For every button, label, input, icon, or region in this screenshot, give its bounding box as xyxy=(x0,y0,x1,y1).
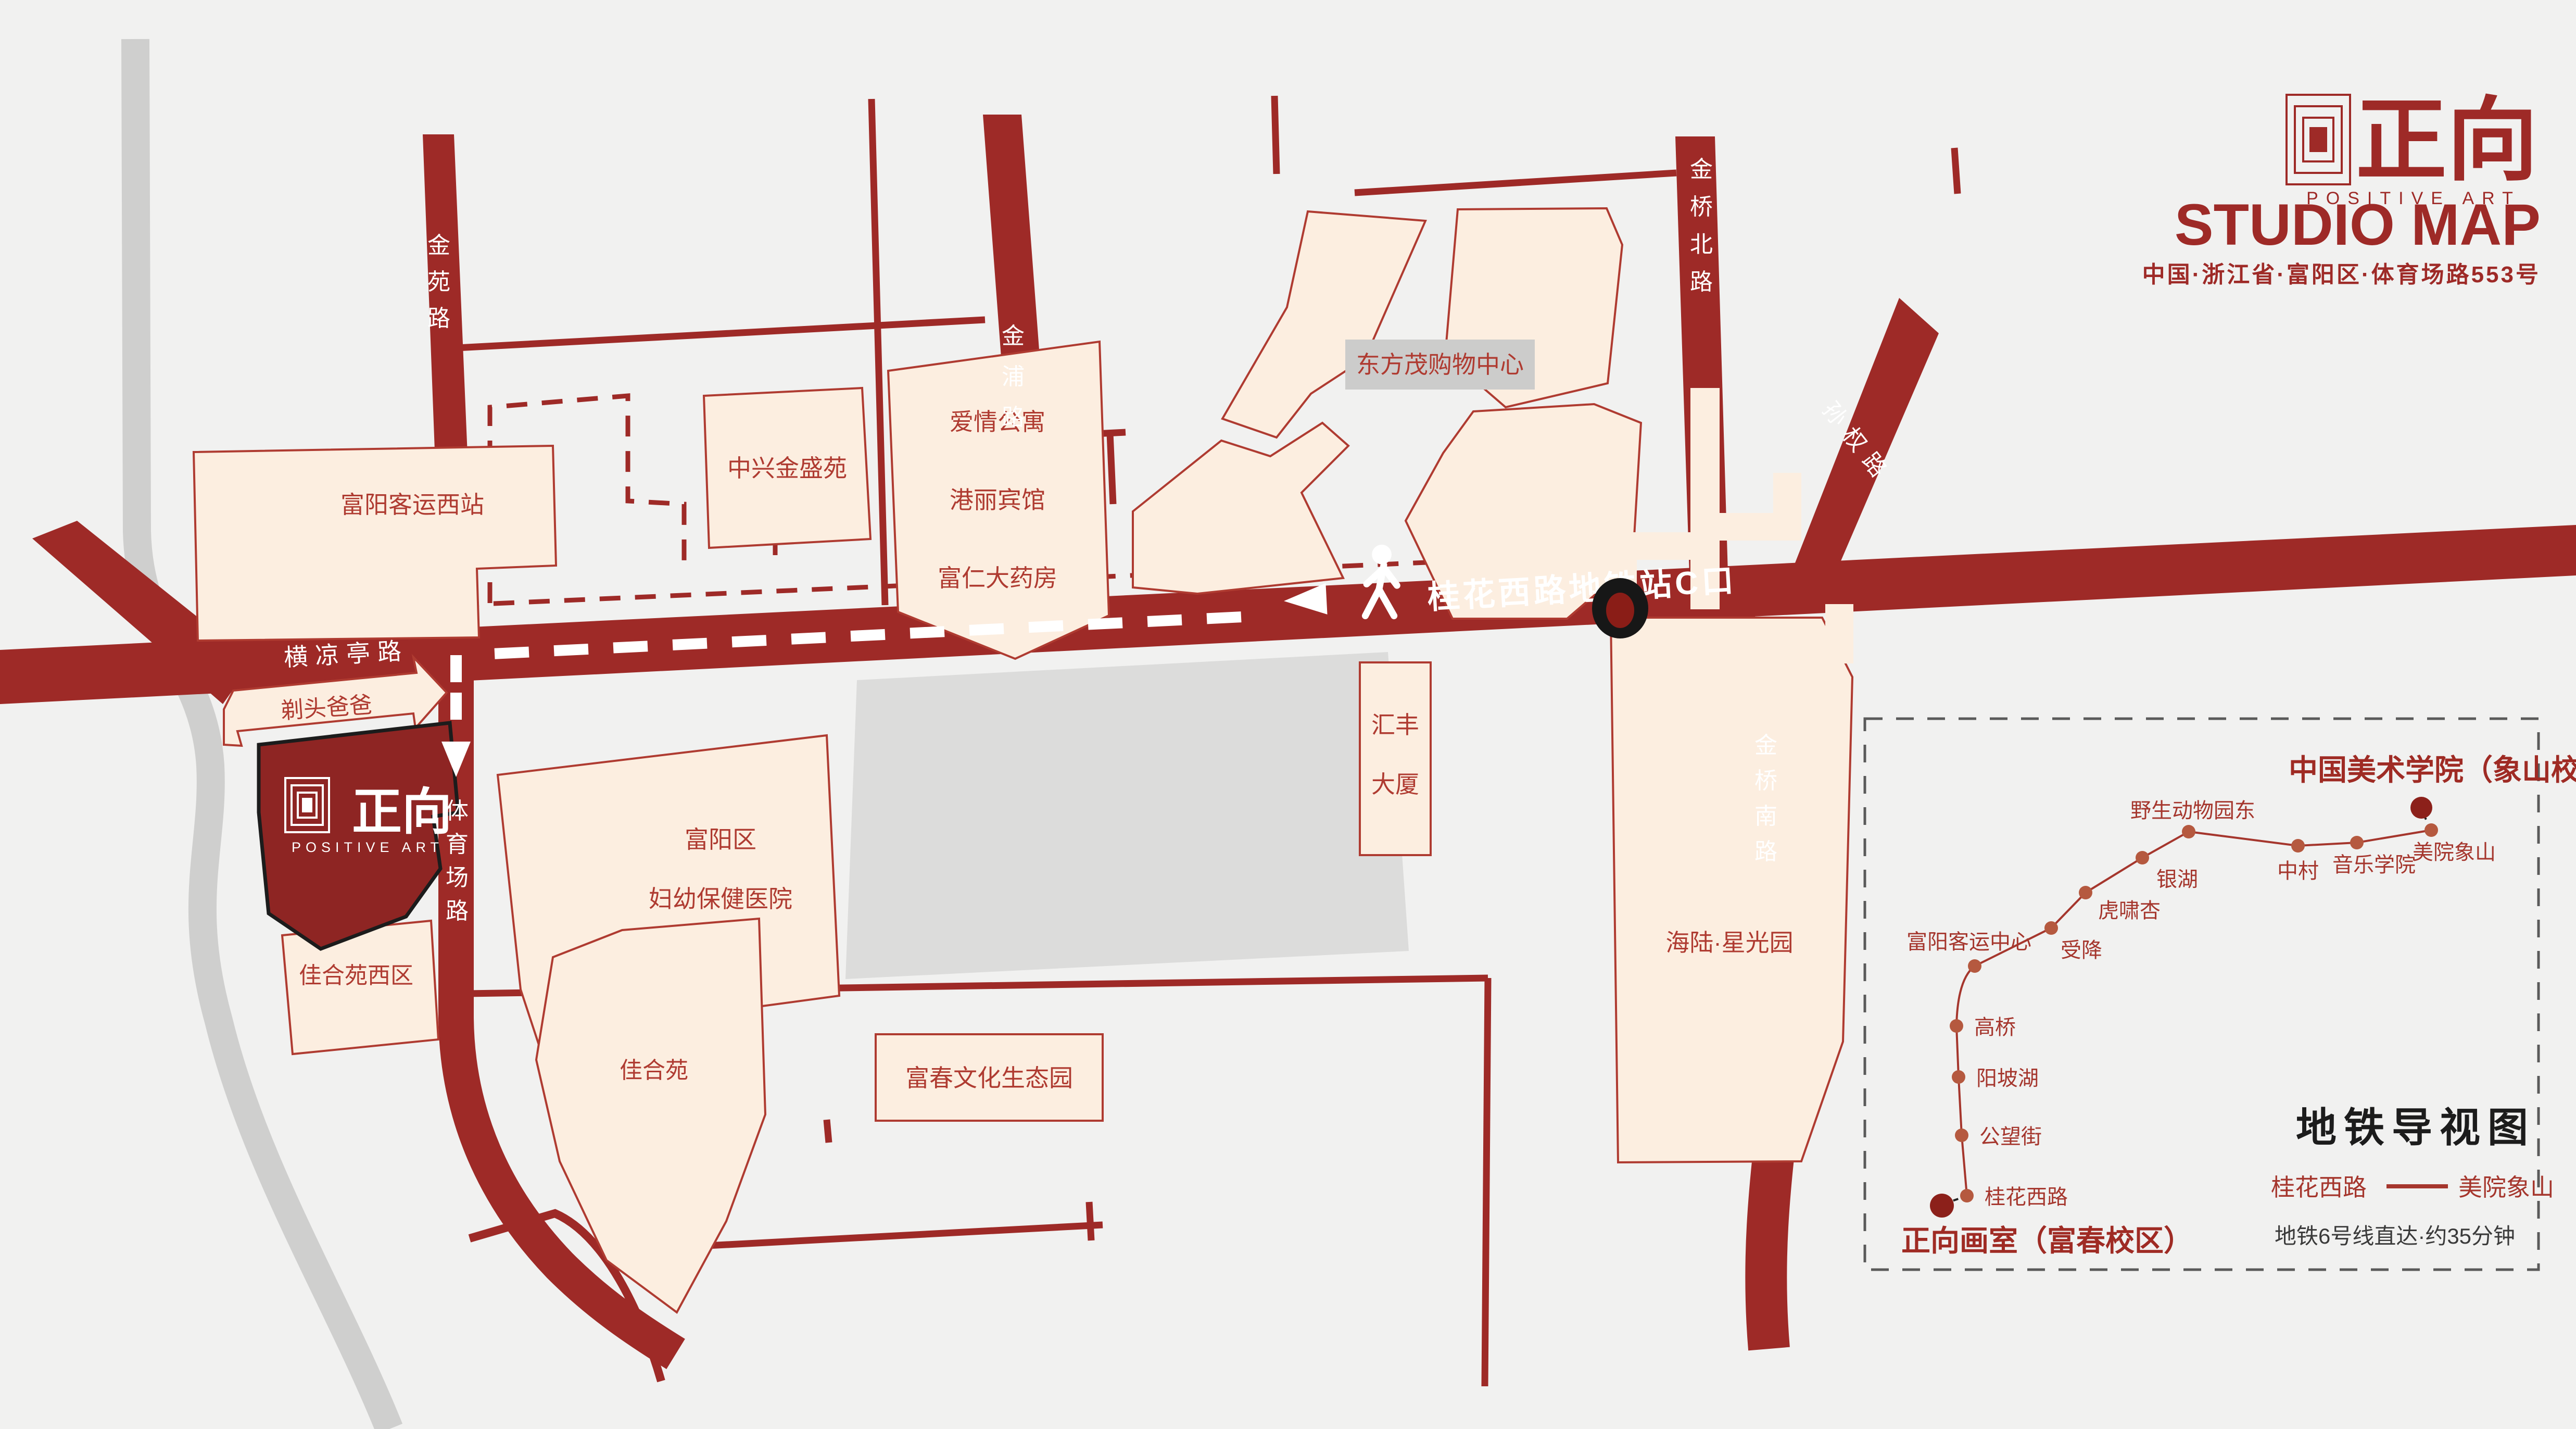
studio-logo-icon xyxy=(285,778,329,832)
metro-station-label: 野生动物园东 xyxy=(2130,799,2255,822)
brand-address: 中国·浙江省·富阳区·体育场路553号 xyxy=(2142,262,2541,287)
label-hailu: 海陆·星光园 xyxy=(1665,929,1793,956)
label-jinyuan: 金苑路 xyxy=(427,233,450,331)
walk-dash xyxy=(673,638,708,650)
walk-dash xyxy=(1207,611,1242,624)
building-hailu xyxy=(1611,618,1852,1162)
label-gangli: 港丽宾馆 xyxy=(950,486,1045,513)
metro-station-dot xyxy=(2079,886,2092,899)
studio-name-cn: 正向 xyxy=(352,784,452,840)
walk-dash xyxy=(554,644,589,656)
metro-station-label: 中村 xyxy=(2277,860,2319,883)
building-mall-w xyxy=(1133,423,1348,594)
metro-station-label: 美院象山 xyxy=(2413,841,2496,864)
walk-dash xyxy=(1088,617,1123,630)
brand-logo-cn: 正向 xyxy=(2356,90,2538,192)
metro-station-dot xyxy=(2291,839,2305,853)
studio-building: 正向 POSITIVE ART xyxy=(259,723,458,949)
walk-dash xyxy=(1147,615,1182,627)
metro-start-label: 正向画室（富春校区） xyxy=(1901,1224,2193,1257)
walk-dash xyxy=(450,655,462,682)
metro-station-label: 银湖 xyxy=(2156,868,2198,891)
brand-logo-icon xyxy=(2287,95,2350,184)
brand-title: STUDIO MAP xyxy=(2175,192,2541,257)
metro-diagram: 桂花西路公望街阳坡湖高桥富阳客运中心受降虎啸杏银湖野生动物园东中村音乐学院美院象… xyxy=(1865,719,2576,1270)
metro-station-dot xyxy=(2350,836,2364,849)
label-huifeng-2: 大厦 xyxy=(1371,771,1419,798)
metro-note: 地铁6号线直达·约35分钟 xyxy=(2275,1224,2515,1248)
label-jiaheyuan-west: 佳合苑西区 xyxy=(299,963,413,988)
walk-dash xyxy=(732,635,767,647)
metro-terminus-end xyxy=(2410,797,2432,819)
building-huifeng-box xyxy=(1360,662,1431,855)
metro-station-dot xyxy=(1960,1189,1974,1202)
metro-station-label: 受降 xyxy=(2061,939,2102,962)
label-furen: 富仁大药房 xyxy=(938,565,1057,592)
walk-dash xyxy=(1029,620,1064,633)
label-hospital-1: 富阳区 xyxy=(685,826,756,853)
metro-station-label: 高桥 xyxy=(1974,1016,2016,1039)
walk-dash xyxy=(851,629,886,642)
metro-station-dot xyxy=(1950,1019,1963,1033)
metro-station-dot xyxy=(2044,921,2058,935)
walk-dash xyxy=(613,641,648,653)
metro-station-label: 富阳客运中心 xyxy=(1906,931,2031,954)
metro-route-to: 美院象山 xyxy=(2458,1174,2554,1201)
studio-name-en: POSITIVE ART xyxy=(292,839,444,855)
metro-station-dot xyxy=(2136,851,2149,864)
gray-block xyxy=(845,652,1409,979)
label-huifeng-1: 汇丰 xyxy=(1371,711,1419,738)
metro-exit-marker xyxy=(1592,578,1648,638)
metro-terminus-start xyxy=(1930,1194,1954,1218)
metro-station-label: 音乐学院 xyxy=(2332,854,2416,876)
metro-station-dot xyxy=(2425,823,2438,837)
walk-dash xyxy=(495,647,529,659)
walk-dash xyxy=(969,623,1004,636)
building-fuyang-west-bus xyxy=(194,446,556,641)
label-aiqing: 爱情公寓 xyxy=(950,408,1045,435)
metro-station-label: 阳坡湖 xyxy=(1976,1067,2039,1090)
metro-station-label: 桂花西路 xyxy=(1985,1186,2068,1209)
walk-dash xyxy=(450,693,462,720)
building-mall-nw xyxy=(1222,211,1425,437)
label-dongfangmao: 东方茂购物中心 xyxy=(1356,351,1524,378)
metro-station-dot xyxy=(1955,1129,1968,1142)
metro-station-dot xyxy=(2182,825,2195,838)
metro-station-label: 虎啸杏 xyxy=(2098,899,2161,922)
label-zhongxing: 中兴金盛苑 xyxy=(727,455,847,482)
metro-station-dot xyxy=(1952,1070,1965,1084)
walk-dash xyxy=(791,632,826,644)
metro-title: 地铁导视图 xyxy=(2296,1105,2535,1150)
metro-route-dash xyxy=(2386,1184,2448,1188)
metro-end-label: 中国美术学院（象山校区） xyxy=(2289,754,2576,786)
label-hospital-2: 妇幼保健医院 xyxy=(649,885,792,912)
brand-block: 正向 POSITIVE ART STUDIO MAP 中国·浙江省·富阳区·体育… xyxy=(2142,90,2541,287)
metro-station-dot xyxy=(1968,959,1981,973)
walk-dash xyxy=(910,626,945,638)
label-jiaheyuan: 佳合苑 xyxy=(620,1058,688,1083)
metro-route-from: 桂花西路 xyxy=(2271,1174,2367,1201)
metro-station-label: 公望街 xyxy=(1979,1125,2042,1148)
label-fuyang-west-bus: 富阳客运西站 xyxy=(340,491,484,518)
label-fuchun: 富春文化生态园 xyxy=(905,1064,1073,1092)
studio-map-canvas: 正向 POSITIVE ART 富阳客运西站 中兴金盛苑 爱情公寓 港丽宾馆 富… xyxy=(0,0,2576,1429)
label-jinpu: 金浦路 xyxy=(1002,323,1025,430)
